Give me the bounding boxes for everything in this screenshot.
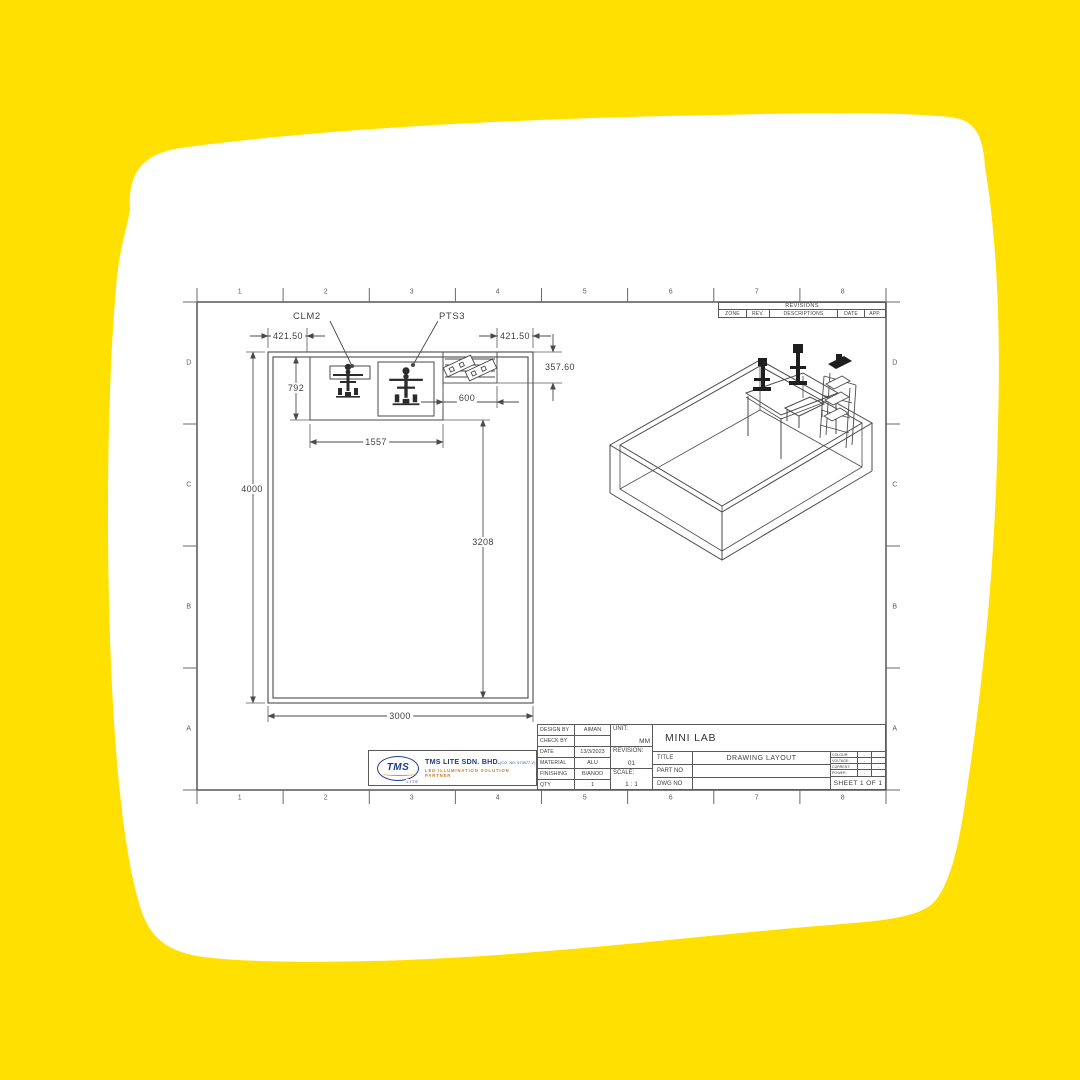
zone-label: 3 bbox=[410, 289, 414, 296]
zone-label: 1 bbox=[238, 289, 242, 296]
company-reg-no: (CO. NO: 573977-V) bbox=[500, 761, 536, 765]
zone-label: 4 bbox=[496, 795, 500, 802]
revision-value: 01 bbox=[613, 760, 650, 767]
zone-label: 2 bbox=[324, 795, 328, 802]
qty-value: 1 bbox=[574, 779, 611, 790]
zone-label: 7 bbox=[755, 795, 759, 802]
revisions-col-rev: REV. bbox=[746, 309, 770, 318]
company-logo-box: TMS LITE TMS LITE SDN. BHD.(CO. NO: 5739… bbox=[368, 750, 537, 786]
zone-label: A bbox=[186, 726, 191, 733]
dim-bench-width: 1557 bbox=[363, 437, 389, 447]
tms-logo-swoosh bbox=[382, 772, 416, 776]
zone-label: B bbox=[186, 604, 191, 611]
project-name: MINI LAB bbox=[652, 724, 886, 752]
company-name: TMS LITE SDN. BHD.(CO. NO: 573977-V) bbox=[425, 758, 536, 767]
revision-label: REVISION: bbox=[613, 748, 650, 754]
zone-label: B bbox=[892, 604, 897, 611]
zone-label: D bbox=[892, 360, 898, 367]
zone-label: 2 bbox=[324, 289, 328, 296]
zone-label: 4 bbox=[496, 289, 500, 296]
qty-label: QTY bbox=[537, 779, 575, 790]
scale-value: 1 : 1 bbox=[613, 781, 650, 788]
zone-label: 3 bbox=[410, 795, 414, 802]
zone-label: 8 bbox=[841, 289, 845, 296]
revisions-col-app: APP. bbox=[864, 309, 886, 318]
part-no-label: PART NO bbox=[652, 764, 693, 778]
dim-room-width: 3000 bbox=[387, 711, 413, 721]
dim-rack-width: 600 bbox=[457, 393, 477, 403]
tms-logo-icon: TMS LITE bbox=[377, 756, 419, 781]
title-label: TITLE bbox=[652, 751, 693, 765]
revision-cell: REVISION: 01 bbox=[610, 746, 653, 769]
dwg-no-label: DWG NO bbox=[652, 777, 693, 790]
dim-clear-length: 3208 bbox=[470, 537, 496, 547]
title-value: DRAWING LAYOUT bbox=[692, 751, 831, 765]
zone-label: 5 bbox=[583, 289, 587, 296]
zone-label: A bbox=[892, 726, 897, 733]
machine-label-clm2: CLM2 bbox=[292, 311, 322, 322]
dim-rack-depth: 357.60 bbox=[543, 362, 577, 372]
zone-label: 6 bbox=[669, 289, 673, 296]
zone-label: C bbox=[186, 482, 192, 489]
paper-blob bbox=[0, 0, 1080, 1080]
scale-cell: SCALE: 1 : 1 bbox=[610, 768, 653, 790]
canvas: { "colors": { "canvas": "#FFE000", "pape… bbox=[0, 0, 1080, 1080]
zone-label: 8 bbox=[841, 795, 845, 802]
part-no-value bbox=[692, 764, 831, 778]
sheet-info: SHEET 1 OF 1 bbox=[830, 776, 886, 790]
zone-label: 5 bbox=[583, 795, 587, 802]
unit-value: MM bbox=[613, 738, 650, 745]
dim-bench-depth: 792 bbox=[286, 383, 306, 393]
machine-label-pts3: PTS3 bbox=[438, 311, 466, 322]
zone-label: 7 bbox=[755, 289, 759, 296]
dim-offset-left: 421.50 bbox=[271, 331, 305, 341]
scale-label: SCALE: bbox=[613, 770, 650, 776]
zone-label: 6 bbox=[669, 795, 673, 802]
company-tagline: LED ILLUMINATION SOLUTION PARTNER bbox=[425, 768, 536, 778]
dim-offset-right: 421.50 bbox=[498, 331, 532, 341]
dwg-no-value bbox=[692, 777, 831, 790]
revisions-col-descriptions: DESCRIPTIONS bbox=[769, 309, 838, 318]
revisions-col-date: DATE bbox=[837, 309, 865, 318]
tms-logo-sub: LITE bbox=[406, 779, 420, 784]
revisions-col-zone: ZONE bbox=[718, 309, 747, 318]
zone-label: 1 bbox=[238, 795, 242, 802]
dim-room-length: 4000 bbox=[239, 484, 265, 494]
zone-label: C bbox=[892, 482, 898, 489]
unit-cell: UNIT: MM bbox=[610, 724, 653, 747]
zone-label: D bbox=[186, 360, 192, 367]
unit-label: UNIT: bbox=[613, 726, 650, 732]
